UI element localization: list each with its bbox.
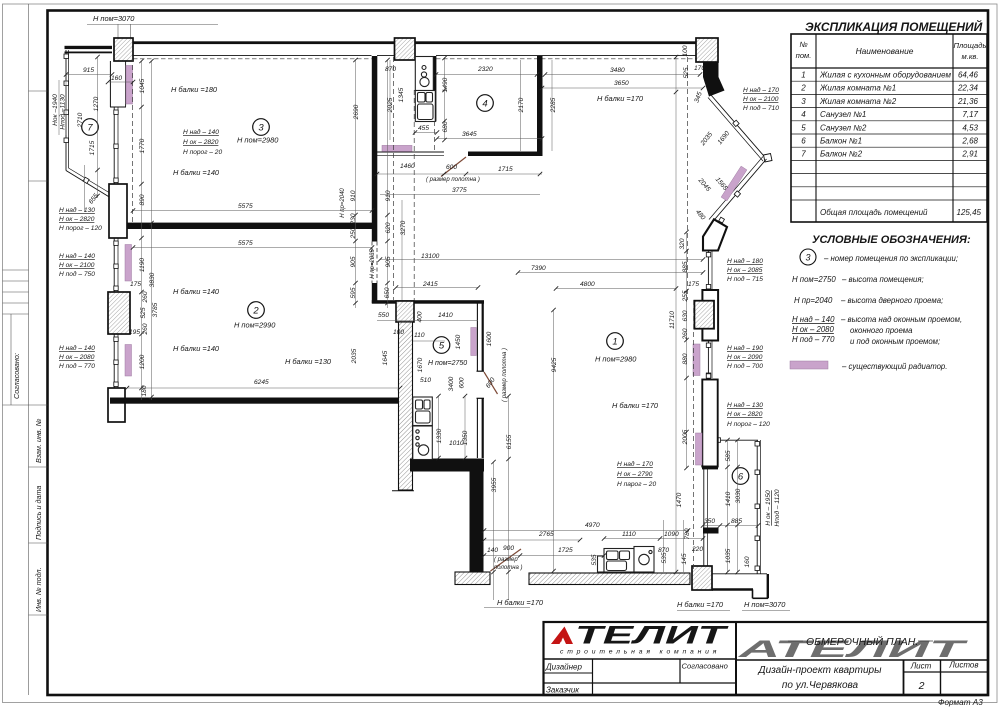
svg-text:3400: 3400: [448, 376, 455, 391]
svg-text:и под оконным проемом;: и под оконным проемом;: [850, 337, 940, 346]
svg-text:6155: 6155: [506, 434, 513, 449]
svg-text:Н ок – 2820: Н ок – 2820: [727, 411, 763, 418]
svg-text:3480: 3480: [610, 67, 625, 74]
svg-text:1450: 1450: [455, 334, 462, 349]
svg-text:Н ок – 1950: Н ок – 1950: [765, 490, 772, 526]
svg-text:7: 7: [87, 123, 93, 134]
svg-text:6: 6: [738, 472, 744, 483]
svg-text:915: 915: [83, 67, 94, 74]
svg-text:905: 905: [385, 256, 392, 267]
svg-text:3645: 3645: [462, 131, 477, 138]
svg-text:175: 175: [688, 281, 699, 288]
svg-text:3: 3: [805, 253, 810, 263]
svg-text:195: 195: [129, 329, 140, 336]
svg-text:2285: 2285: [550, 97, 557, 113]
svg-text:3270: 3270: [400, 220, 407, 235]
svg-text:Н ок – 2820: Н ок – 2820: [59, 216, 95, 223]
svg-text:1350: 1350: [462, 430, 469, 445]
svg-text:585: 585: [725, 450, 732, 461]
svg-text:455: 455: [418, 125, 429, 132]
svg-text:890: 890: [139, 194, 146, 205]
svg-text:Н пом=3070: Н пом=3070: [744, 600, 786, 609]
svg-text:– высота дверного проема;: – высота дверного проема;: [840, 296, 943, 305]
svg-text:630: 630: [682, 310, 689, 321]
svg-text:Жилая с кухонным оборудованием: Жилая с кухонным оборудованием: [819, 71, 952, 80]
svg-text:5575: 5575: [238, 240, 253, 247]
svg-text:910: 910: [385, 190, 392, 201]
svg-text:Н пр=2040: Н пр=2040: [794, 296, 833, 305]
svg-text:4970: 4970: [585, 522, 600, 529]
svg-text:Н ок – 2090: Н ок – 2090: [727, 354, 763, 361]
svg-text:1645: 1645: [382, 350, 389, 365]
svg-text:1490: 1490: [442, 77, 449, 92]
svg-text:2765: 2765: [538, 531, 554, 538]
svg-text:1045: 1045: [139, 78, 146, 93]
svg-text:2415: 2415: [422, 281, 438, 288]
svg-text:Н над – 130: Н над – 130: [59, 206, 95, 214]
svg-text:№: №: [799, 40, 807, 49]
svg-text:Н над – 140: Н над – 140: [792, 315, 835, 324]
svg-text:Дизайн-проект квартиры: Дизайн-проект квартиры: [758, 665, 883, 676]
svg-text:3955: 3955: [491, 477, 498, 492]
svg-text:140: 140: [487, 547, 498, 554]
svg-text:11710: 11710: [669, 311, 676, 329]
svg-text:Н над – 170: Н над – 170: [617, 460, 653, 468]
svg-text:510: 510: [420, 377, 431, 384]
svg-text:2025: 2025: [387, 97, 394, 113]
svg-text:4,53: 4,53: [962, 123, 978, 132]
svg-text:400: 400: [417, 311, 424, 322]
svg-text:Общая площадь помещений: Общая площадь помещений: [820, 208, 928, 217]
svg-text:1200: 1200: [139, 354, 146, 369]
svg-text:1715: 1715: [498, 166, 513, 173]
svg-text:1410: 1410: [438, 312, 453, 319]
svg-text:Нок –1940: Нок –1940: [52, 94, 59, 126]
svg-text:Н над – 140: Н над – 140: [59, 252, 95, 260]
svg-text:Формат А3: Формат А3: [938, 698, 983, 707]
svg-text:3775: 3775: [452, 187, 467, 194]
svg-text:595: 595: [350, 287, 357, 298]
svg-text:1330: 1330: [436, 428, 443, 443]
svg-text:Взам. инв. №: Взам. инв. №: [34, 418, 43, 463]
svg-text:260: 260: [142, 291, 149, 303]
svg-text:1: 1: [801, 71, 805, 80]
svg-text:910: 910: [350, 190, 357, 201]
svg-text:1410: 1410: [725, 491, 732, 506]
svg-text:525: 525: [683, 67, 690, 78]
svg-text:5: 5: [801, 123, 806, 132]
svg-text:Н под – 770: Н под – 770: [792, 335, 835, 344]
svg-text:Н порог – 120: Н порог – 120: [59, 225, 102, 232]
svg-text:Жилая комната №2: Жилая комната №2: [819, 97, 897, 106]
svg-text:Площадь: Площадь: [954, 41, 987, 50]
svg-text:3: 3: [258, 123, 264, 134]
svg-text:870: 870: [385, 66, 396, 73]
svg-text:100: 100: [682, 45, 689, 56]
svg-text:строительная компания: строительная компания: [560, 649, 718, 656]
svg-text:3785: 3785: [152, 302, 159, 317]
svg-text:ОБМЕРОЧНЫЙ ПЛАН.: ОБМЕРОЧНЫЙ ПЛАН.: [806, 635, 918, 648]
svg-text:885: 885: [731, 518, 742, 525]
svg-text:Н порог – 20: Н порог – 20: [183, 149, 222, 156]
svg-text:Н над – 140: Н над – 140: [59, 344, 95, 352]
svg-text:пом.: пом.: [796, 51, 812, 60]
svg-text:1460: 1460: [400, 163, 415, 170]
svg-text:2170: 2170: [518, 97, 525, 113]
svg-text:22,34: 22,34: [957, 84, 979, 93]
svg-text:1670: 1670: [417, 357, 424, 372]
svg-text:Н балки =140: Н балки =140: [173, 168, 220, 177]
svg-text:( размер: ( размер: [494, 557, 518, 563]
svg-text:Наименование: Наименование: [856, 46, 914, 56]
svg-text:Н пом=2750: Н пом=2750: [428, 360, 467, 367]
svg-text:9425: 9425: [551, 357, 558, 372]
svg-text:6: 6: [801, 137, 806, 146]
svg-text:2690: 2690: [353, 104, 360, 120]
svg-text:Н балки =170: Н балки =170: [497, 598, 544, 607]
svg-text:Лист: Лист: [910, 662, 932, 671]
svg-text:2005: 2005: [682, 429, 689, 445]
svg-text:Нпод –1130: Нпод –1130: [59, 94, 67, 130]
svg-text:550: 550: [378, 312, 389, 319]
svg-text:220: 220: [691, 546, 703, 553]
svg-text:Н под – 770: Н под – 770: [59, 362, 95, 370]
svg-text:УСЛОВНЫЕ ОБОЗНАЧЕНИЯ:: УСЛОВНЫЕ ОБОЗНАЧЕНИЯ:: [812, 234, 971, 246]
svg-text:Н ок – 2080: Н ок – 2080: [792, 325, 834, 334]
svg-text:Н пом=3070: Н пом=3070: [93, 14, 135, 23]
svg-text:4: 4: [482, 99, 487, 110]
svg-text:Балкон №2: Балкон №2: [820, 150, 863, 159]
svg-text:Н над – 140: Н над – 140: [183, 128, 219, 136]
svg-text:1035: 1035: [725, 548, 732, 563]
svg-text:Н пр=2035: Н пр=2035: [370, 249, 376, 279]
svg-text:7390: 7390: [531, 265, 546, 272]
svg-text:880: 880: [682, 353, 689, 364]
svg-text:1715: 1715: [89, 140, 96, 155]
svg-text:Заказчик: Заказчик: [546, 686, 580, 695]
svg-text:ТЕЛИТ: ТЕЛИТ: [575, 621, 729, 649]
svg-text:Н балки =130: Н балки =130: [285, 357, 332, 366]
svg-text:1110: 1110: [622, 531, 636, 538]
svg-text:1090: 1090: [664, 531, 679, 538]
svg-text:21,36: 21,36: [957, 97, 979, 106]
svg-text:2: 2: [252, 306, 259, 317]
svg-text:Н балки =140: Н балки =140: [173, 344, 220, 353]
svg-text:Н пом=2990: Н пом=2990: [234, 321, 276, 330]
svg-text:535: 535: [661, 552, 668, 563]
svg-text:2035: 2035: [351, 348, 358, 364]
svg-text:3030: 3030: [735, 488, 742, 503]
svg-text:7: 7: [801, 150, 806, 159]
svg-text:Н ок – 2820: Н ок – 2820: [183, 139, 219, 146]
svg-text:13100: 13100: [421, 253, 440, 260]
svg-text:( размер полотна ): ( размер полотна ): [502, 348, 508, 402]
svg-text:900: 900: [503, 545, 514, 552]
svg-text:905: 905: [350, 256, 357, 267]
svg-text:Н балки =170: Н балки =170: [612, 401, 659, 410]
svg-text:Н ок – 2100: Н ок – 2100: [743, 96, 779, 103]
svg-text:620: 620: [385, 222, 392, 233]
svg-text:3830: 3830: [149, 272, 156, 287]
svg-text:1600: 1600: [486, 331, 493, 346]
svg-text:650: 650: [384, 287, 391, 298]
svg-text:2,91: 2,91: [961, 150, 978, 159]
svg-text:250: 250: [350, 227, 357, 239]
svg-text:Н над – 190: Н над – 190: [727, 344, 763, 352]
svg-text:Н пом=2980: Н пом=2980: [237, 136, 279, 145]
svg-text:350: 350: [704, 518, 715, 525]
svg-text:м.кв.: м.кв.: [962, 52, 979, 61]
svg-text:4: 4: [801, 110, 806, 119]
svg-text:Санузел №1: Санузел №1: [820, 110, 866, 119]
svg-text:3650: 3650: [614, 80, 629, 87]
svg-text:4800: 4800: [580, 281, 595, 288]
svg-text:Н ок – 2080: Н ок – 2080: [59, 354, 95, 361]
svg-text:885: 885: [682, 261, 689, 272]
svg-text:Нпод – 1120: Нпод – 1120: [773, 489, 781, 527]
svg-text:6245: 6245: [254, 379, 269, 386]
svg-text:160: 160: [111, 75, 122, 82]
svg-text:Н пом=2750: Н пом=2750: [792, 275, 836, 284]
svg-text:( размер полотна ): ( размер полотна ): [426, 177, 480, 183]
svg-text:1770: 1770: [139, 138, 146, 153]
svg-text:по ул.Червякова: по ул.Червякова: [782, 680, 859, 691]
svg-text:Н под – 750: Н под – 750: [59, 270, 95, 278]
svg-text:Н под – 715: Н под – 715: [727, 275, 763, 283]
svg-text:600: 600: [459, 377, 466, 388]
svg-text:Н пом=2980: Н пом=2980: [595, 355, 637, 364]
svg-text:Н парог – 20: Н парог – 20: [617, 481, 656, 488]
svg-text:Н над – 170: Н над – 170: [743, 86, 779, 94]
svg-text:2: 2: [800, 84, 806, 93]
svg-text:Н балки =170: Н балки =170: [597, 94, 644, 103]
svg-text:полотна ): полотна ): [494, 565, 523, 571]
svg-text:Н над – 180: Н над – 180: [727, 257, 763, 265]
svg-text:100: 100: [393, 329, 404, 336]
svg-text:535: 535: [591, 554, 598, 565]
svg-text:Н под – 700: Н под – 700: [727, 362, 763, 370]
svg-text:160: 160: [744, 556, 751, 567]
svg-text:– высота помещения;: – высота помещения;: [841, 275, 924, 284]
svg-text:оконного проема: оконного проема: [850, 326, 913, 335]
svg-text:ЭКСПЛИКАЦИЯ ПОМЕЩЕНИЙ: ЭКСПЛИКАЦИЯ ПОМЕЩЕНИЙ: [805, 18, 983, 34]
svg-text:600: 600: [446, 164, 457, 171]
svg-text:175: 175: [130, 281, 141, 288]
svg-text:2320: 2320: [477, 66, 493, 73]
svg-text:Листов: Листов: [948, 661, 978, 670]
svg-text:Н балки =140: Н балки =140: [173, 287, 220, 296]
svg-text:5575: 5575: [238, 203, 253, 210]
svg-text:525: 525: [140, 307, 147, 318]
svg-text:– номер помещения по экспликац: – номер помещения по экспликации;: [823, 254, 958, 263]
svg-text:3: 3: [801, 97, 806, 106]
svg-text:Н балки =180: Н балки =180: [171, 85, 218, 94]
svg-text:Согласовано:: Согласовано:: [12, 353, 21, 399]
svg-text:Н пр=2040: Н пр=2040: [340, 188, 346, 218]
svg-text:64,46: 64,46: [958, 71, 979, 80]
svg-text:Подпись и дата: Подпись и дата: [34, 486, 43, 540]
svg-text:1: 1: [612, 337, 617, 348]
svg-text:Инв. № подл.: Инв. № подл.: [34, 567, 43, 612]
svg-text:Н ок – 2085: Н ок – 2085: [727, 267, 763, 274]
svg-text:1190: 1190: [139, 258, 146, 273]
svg-text:320: 320: [679, 238, 686, 249]
svg-text:2: 2: [918, 680, 925, 692]
svg-text:110: 110: [414, 332, 425, 339]
svg-text:Н ок – 2100: Н ок – 2100: [59, 262, 95, 269]
svg-text:Жилая комната №1: Жилая комната №1: [819, 84, 896, 93]
svg-text:170: 170: [694, 65, 705, 72]
svg-text:7,17: 7,17: [962, 110, 978, 119]
svg-text:Н порог – 120: Н порог – 120: [727, 421, 770, 428]
svg-text:5: 5: [439, 341, 445, 352]
svg-text:– существующий радиатор.: – существующий радиатор.: [841, 362, 947, 371]
svg-text:Согласовано: Согласовано: [682, 662, 728, 671]
svg-text:2,68: 2,68: [961, 137, 978, 146]
svg-text:1725: 1725: [558, 547, 573, 554]
svg-text:Н ок – 2790: Н ок – 2790: [617, 471, 653, 478]
svg-text:Балкон №1: Балкон №1: [820, 137, 862, 146]
svg-text:Дизайнер: Дизайнер: [545, 663, 582, 672]
svg-text:125,45: 125,45: [957, 208, 982, 217]
svg-text:260: 260: [142, 323, 149, 335]
svg-text:Санузел №2: Санузел №2: [820, 123, 867, 132]
svg-text:780: 780: [684, 528, 691, 539]
svg-text:Н над – 130: Н над – 130: [727, 401, 763, 409]
svg-text:2710: 2710: [77, 112, 84, 128]
svg-text:1270: 1270: [93, 96, 100, 111]
svg-text:Н под – 710: Н под – 710: [743, 104, 779, 112]
svg-text:145: 145: [681, 553, 688, 564]
svg-text:Н балки =170: Н балки =170: [677, 600, 724, 609]
svg-text:1470: 1470: [676, 492, 683, 507]
svg-text:1345: 1345: [398, 87, 405, 102]
svg-text:– высота над оконным проемом,: – высота над оконным проемом,: [840, 315, 962, 324]
